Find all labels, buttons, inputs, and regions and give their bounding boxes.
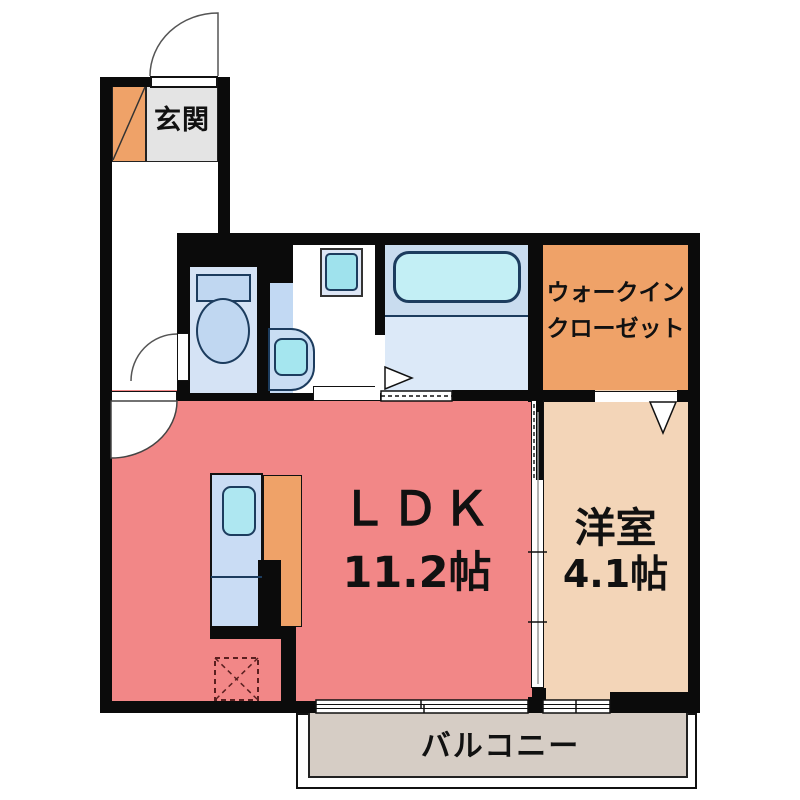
entrance-door-arc — [150, 13, 218, 76]
walk-in-closet-label-line2: クローゼット — [543, 312, 688, 348]
ldk-balcony-window-icon — [316, 700, 528, 713]
wall-western-room-bottom — [610, 692, 700, 713]
wall-entrance-top — [100, 77, 150, 87]
wall-western-room-left-bottom — [532, 688, 546, 713]
kitchen-sink-icon — [222, 486, 256, 536]
entrance-door-leaf — [150, 76, 218, 88]
wall-kitchen-b — [210, 626, 259, 639]
wall-washroom-bathroom — [375, 245, 385, 337]
washing-machine-tub-icon — [325, 253, 358, 291]
shoe-cabinet-icon — [112, 85, 146, 162]
ldk-door-leaf — [111, 391, 177, 402]
walk-in-closet-label-line1: ウォークイン — [543, 276, 688, 312]
wall-right-outer — [688, 233, 700, 713]
toilet-door-leaf — [177, 333, 189, 381]
toilet-door-arc — [131, 334, 177, 381]
western-room-size-label: 4.1帖 — [548, 554, 683, 596]
western-room-window-icon — [543, 700, 610, 713]
ldk-room-floor — [112, 390, 532, 701]
washbasin-bowl-icon — [274, 338, 308, 376]
toilet-bowl-icon — [196, 298, 250, 364]
wall-bathroom-closet — [528, 245, 543, 390]
wall-kitchen-c — [281, 626, 296, 713]
genkan-label: 玄関 — [146, 106, 218, 136]
ldk-label: ＬＤＫ — [312, 484, 522, 536]
wall-sliding-door-upper — [536, 400, 543, 480]
bathtub-icon — [393, 251, 521, 303]
western-room-label: 洋室 — [553, 506, 678, 551]
closet-door-opening — [595, 391, 677, 402]
washroom-sliding-door — [313, 386, 381, 401]
balcony-label: バルコニー — [378, 730, 623, 763]
bathroom-door-opening — [375, 335, 385, 393]
floor-plan: 玄関 ウォークイン クローゼット ＬＤＫ 11.2帖 洋室 4.1帖 バルコニー — [0, 0, 800, 800]
ldk-size-label: 11.2帖 — [312, 550, 522, 597]
wall-corridor-right — [218, 77, 230, 245]
walk-in-closet-label: ウォークイン クローゼット — [543, 276, 688, 347]
wall-kitchen-a — [258, 560, 281, 639]
wall-ldk-top-b — [452, 390, 543, 401]
